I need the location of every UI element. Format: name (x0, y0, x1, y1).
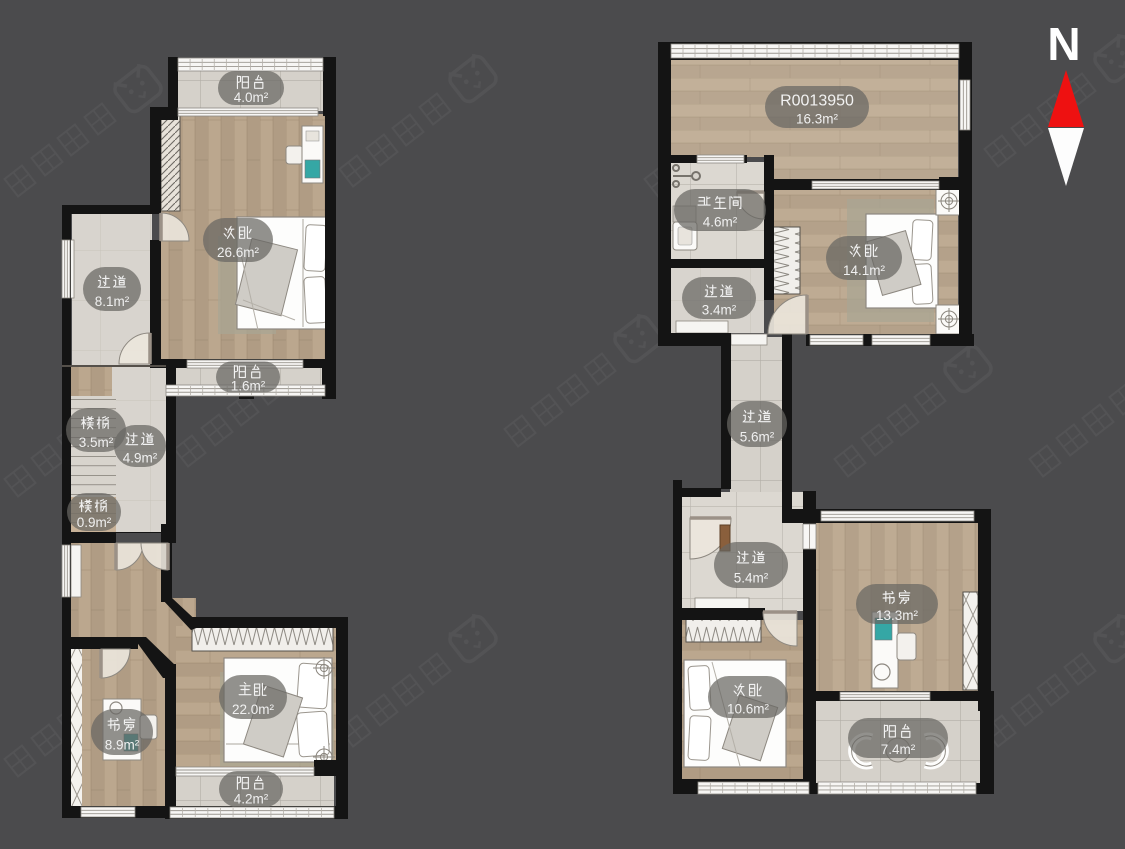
svg-text:4.6m²: 4.6m² (703, 214, 738, 229)
svg-text:8.1m²: 8.1m² (95, 294, 130, 309)
svg-text:4.2m²: 4.2m² (234, 792, 269, 807)
svg-text:16.3m²: 16.3m² (796, 111, 839, 126)
svg-text:5.4m²: 5.4m² (734, 570, 769, 585)
svg-text:7.4m²: 7.4m² (881, 742, 916, 757)
svg-text:26.6m²: 26.6m² (217, 245, 260, 260)
svg-text:10.6m²: 10.6m² (727, 701, 770, 716)
svg-text:14.1m²: 14.1m² (843, 263, 886, 278)
svg-text:8.9m²: 8.9m² (105, 737, 140, 752)
svg-text:22.0m²: 22.0m² (232, 702, 275, 717)
svg-text:N: N (1047, 18, 1080, 70)
svg-text:1.6m²: 1.6m² (231, 378, 266, 393)
svg-text:4.0m²: 4.0m² (234, 90, 269, 105)
svg-text:13.3m²: 13.3m² (876, 608, 919, 623)
svg-text:3.5m²: 3.5m² (79, 435, 114, 450)
svg-text:3.4m²: 3.4m² (702, 302, 737, 317)
svg-text:0.9m²: 0.9m² (77, 515, 112, 530)
svg-text:5.6m²: 5.6m² (740, 429, 775, 444)
svg-text:R0013950: R0013950 (780, 92, 854, 109)
svg-text:4.9m²: 4.9m² (123, 450, 158, 465)
